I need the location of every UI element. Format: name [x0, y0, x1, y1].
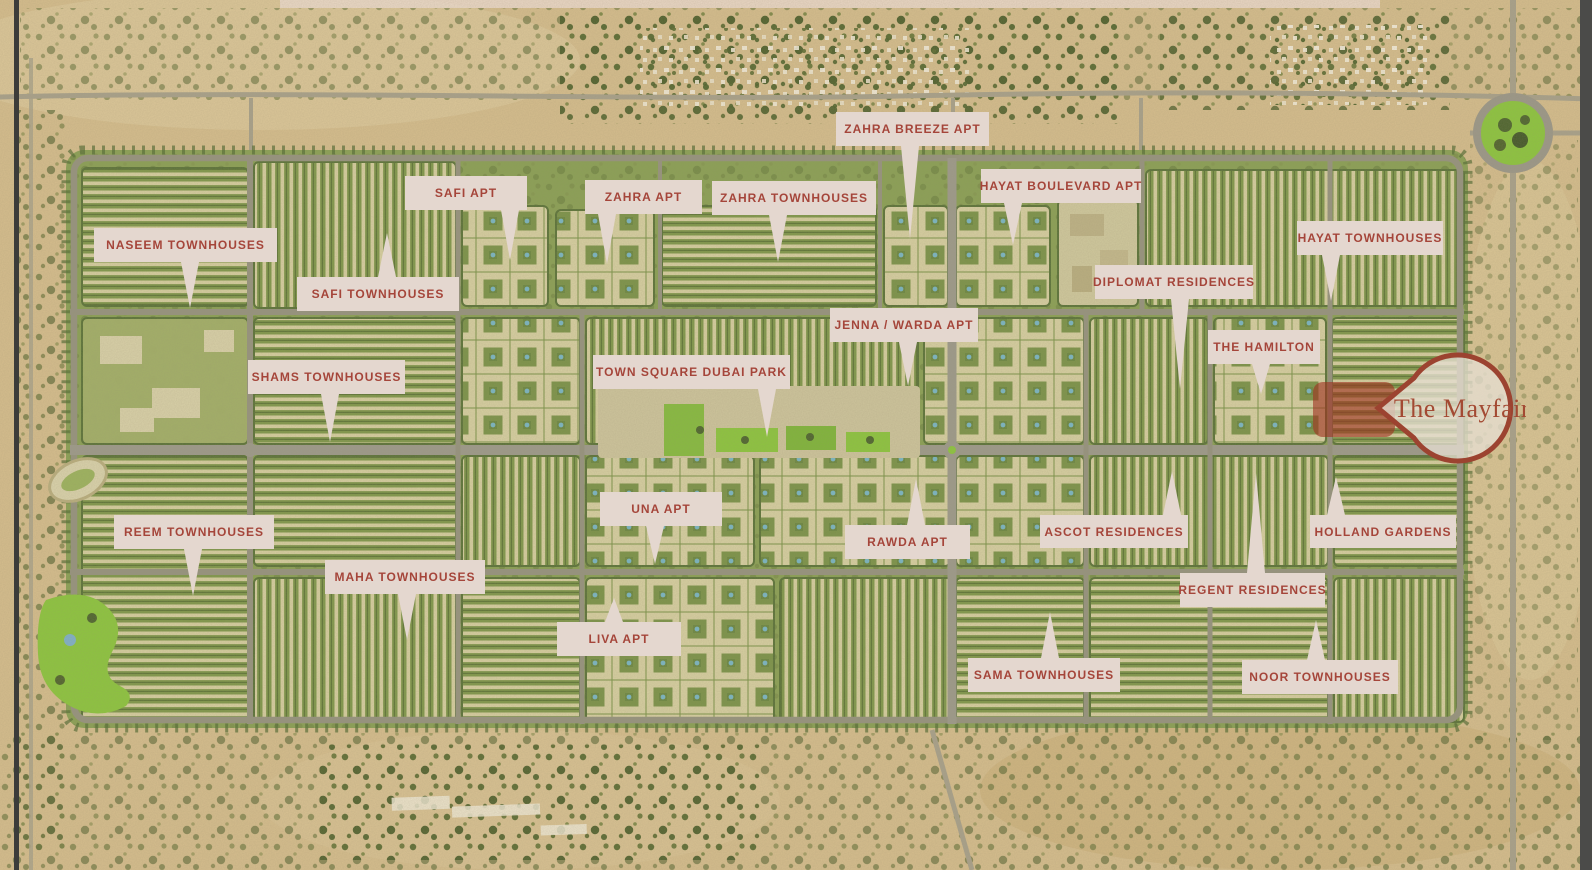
map-label-naseem-townhouses[interactable]: NASEEM TOWNHOUSES	[94, 228, 277, 262]
map-label-text: HAYAT BOULEVARD APT	[980, 179, 1143, 193]
map-label-town-square-dubai-park[interactable]: TOWN SQUARE DUBAI PARK	[593, 355, 790, 389]
map-label-shams-townhouses[interactable]: SHAMS TOWNHOUSES	[248, 360, 405, 394]
map-label-regent-residences[interactable]: REGENT RESIDENCES	[1180, 573, 1325, 607]
map-label-hayat-townhouses[interactable]: HAYAT TOWNHOUSES	[1297, 221, 1443, 255]
label-pointer-tail	[181, 262, 199, 308]
label-pointer-tail	[501, 210, 519, 260]
map-label-text: DIPLOMAT RESIDENCES	[1093, 275, 1255, 289]
map-label-text: ZAHRA BREEZE APT	[844, 122, 980, 136]
map-label-text: SHAMS TOWNHOUSES	[252, 370, 402, 384]
map-label-rawda-apt[interactable]: RAWDA APT	[845, 525, 970, 559]
map-label-text: UNA APT	[631, 502, 690, 516]
map-label-ascot-residences[interactable]: ASCOT RESIDENCES	[1040, 515, 1188, 548]
map-label-safi-townhouses[interactable]: SAFI TOWNHOUSES	[297, 277, 459, 311]
map-label-text: HOLLAND GARDENS	[1315, 525, 1452, 539]
label-pointer-tail	[769, 215, 787, 262]
map-label-text: NASEEM TOWNHOUSES	[106, 238, 265, 252]
map-label-noor-townhouses[interactable]: NOOR TOWNHOUSES	[1242, 660, 1398, 694]
map-label-holland-gardens[interactable]: HOLLAND GARDENS	[1310, 515, 1456, 548]
label-pointer-tail	[899, 342, 917, 386]
label-pointer-tail	[378, 233, 396, 277]
label-pointer-tail	[907, 479, 925, 525]
map-label-text: LIVA APT	[589, 632, 650, 646]
map-label-jenna-warda-apt[interactable]: JENNA / WARDA APT	[830, 308, 978, 342]
label-pointer-tail	[1322, 255, 1340, 301]
label-pointer-tail	[1307, 620, 1325, 660]
label-pointer-tail	[1171, 299, 1189, 389]
map-label-reem-townhouses[interactable]: REEM TOWNHOUSES	[114, 515, 274, 549]
label-pointer-tail	[1327, 477, 1345, 515]
map-label-hayat-boulevard-apt[interactable]: HAYAT BOULEVARD APT	[981, 169, 1141, 203]
map-label-text: HAYAT TOWNHOUSES	[1298, 231, 1443, 245]
map-label-text: NOOR TOWNHOUSES	[1249, 670, 1390, 684]
map-label-text: MAHA TOWNHOUSES	[335, 570, 476, 584]
map-label-zahra-apt[interactable]: ZAHRA APT	[585, 180, 702, 214]
map-label-una-apt[interactable]: UNA APT	[600, 492, 722, 526]
label-pointer-tail	[1163, 471, 1181, 515]
label-pointer-tail	[1004, 203, 1022, 245]
label-pointer-tail	[1041, 612, 1059, 658]
map-label-text: SAMA TOWNHOUSES	[974, 668, 1114, 682]
map-label-diplomat-residences[interactable]: DIPLOMAT RESIDENCES	[1095, 265, 1253, 299]
label-pointer-tail	[901, 146, 919, 239]
map-label-text: SAFI TOWNHOUSES	[312, 287, 445, 301]
label-pointer-tail	[321, 394, 339, 442]
map-label-text: JENNA / WARDA APT	[834, 318, 973, 332]
label-pointer-tail	[1247, 473, 1265, 573]
label-pointer-tail	[605, 598, 623, 622]
map-label-text: REGENT RESIDENCES	[1178, 583, 1326, 597]
label-pointer-tail	[398, 594, 416, 640]
map-label-text: RAWDA APT	[867, 535, 948, 549]
map-label-text: REEM TOWNHOUSES	[124, 525, 264, 539]
map-label-zahra-townhouses[interactable]: ZAHRA TOWNHOUSES	[712, 181, 876, 215]
map-label-zahra-breeze-apt[interactable]: ZAHRA BREEZE APT	[836, 112, 989, 146]
map-label-maha-townhouses[interactable]: MAHA TOWNHOUSES	[325, 560, 485, 594]
map-label-liva-apt[interactable]: LIVA APT	[557, 622, 681, 656]
map-label-text: SAFI APT	[435, 186, 497, 200]
label-pointer-tail	[646, 526, 664, 564]
masterplan-screenshot: NASEEM TOWNHOUSESSAFI APTSAFI TOWNHOUSES…	[0, 0, 1592, 870]
map-label-text: ZAHRA TOWNHOUSES	[720, 191, 868, 205]
map-label-sama-townhouses[interactable]: SAMA TOWNHOUSES	[968, 658, 1120, 692]
map-label-text: ASCOT RESIDENCES	[1044, 525, 1183, 539]
label-pointer-tail	[1252, 364, 1270, 394]
mayfair-pin[interactable]: The Mayfair	[1290, 344, 1526, 472]
label-pointer-tail	[184, 549, 202, 596]
label-pointer-tail	[598, 214, 616, 264]
map-label-safi-apt[interactable]: SAFI APT	[405, 176, 527, 210]
label-pointer-tail	[758, 389, 776, 437]
map-label-text: ZAHRA APT	[605, 190, 682, 204]
map-label-text: TOWN SQUARE DUBAI PARK	[596, 365, 787, 379]
pin-label: The Mayfair	[1394, 394, 1526, 423]
